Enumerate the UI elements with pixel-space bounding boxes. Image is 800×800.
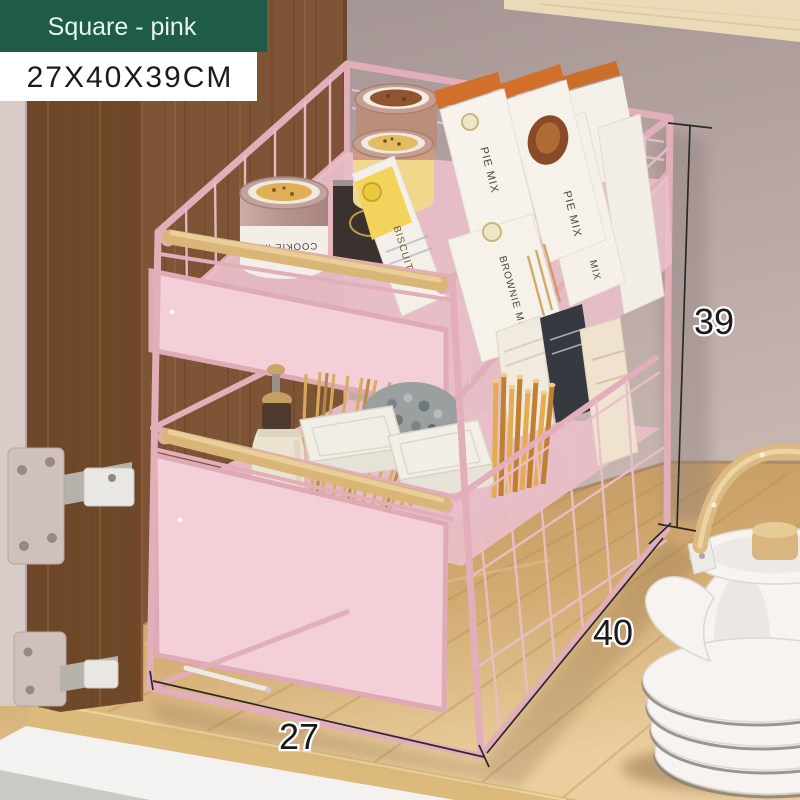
product-photo: COOKIE MIX MIX PIE MIX (0, 0, 800, 800)
dimension-label-depth: 40 (593, 612, 633, 653)
teapot-knob (752, 522, 798, 560)
scene-canvas: COOKIE MIX MIX PIE MIX (0, 0, 800, 800)
plate-stack (643, 638, 800, 797)
door-edge (0, 100, 27, 706)
door-face (27, 100, 143, 712)
size-badge: 27X40X39CM (0, 52, 257, 101)
variant-badge: Square - pink (0, 0, 267, 52)
dimension-label-height: 39 (694, 301, 734, 342)
size-badge-label: 27X40X39CM (27, 61, 234, 94)
cabinet-door (0, 100, 143, 712)
dimension-label-width: 27 (279, 716, 319, 757)
variant-badge-label: Square - pink (48, 13, 197, 41)
